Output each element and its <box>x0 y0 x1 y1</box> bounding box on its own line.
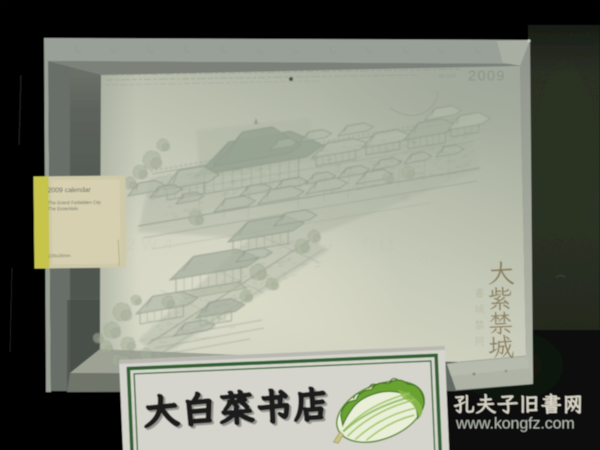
svg-text:The Essentials: The Essentials <box>48 206 79 211</box>
svg-text:2009: 2009 <box>468 69 506 85</box>
svg-text:209: 209 <box>418 250 440 265</box>
svg-text:www.kongfz.com: www.kongfz.com <box>455 416 575 433</box>
svg-text:The Grand Forbidden City: The Grand Forbidden City <box>48 200 102 206</box>
svg-text:7/11: 7/11 <box>360 237 398 254</box>
svg-text:5/5: 5/5 <box>228 235 249 252</box>
svg-text:2W4: 2W4 <box>126 235 179 254</box>
svg-text:2009 calendar: 2009 calendar <box>48 187 92 194</box>
svg-text:239x38mm: 239x38mm <box>48 253 71 258</box>
svg-text:4b IUP: 4b IUP <box>438 74 456 80</box>
